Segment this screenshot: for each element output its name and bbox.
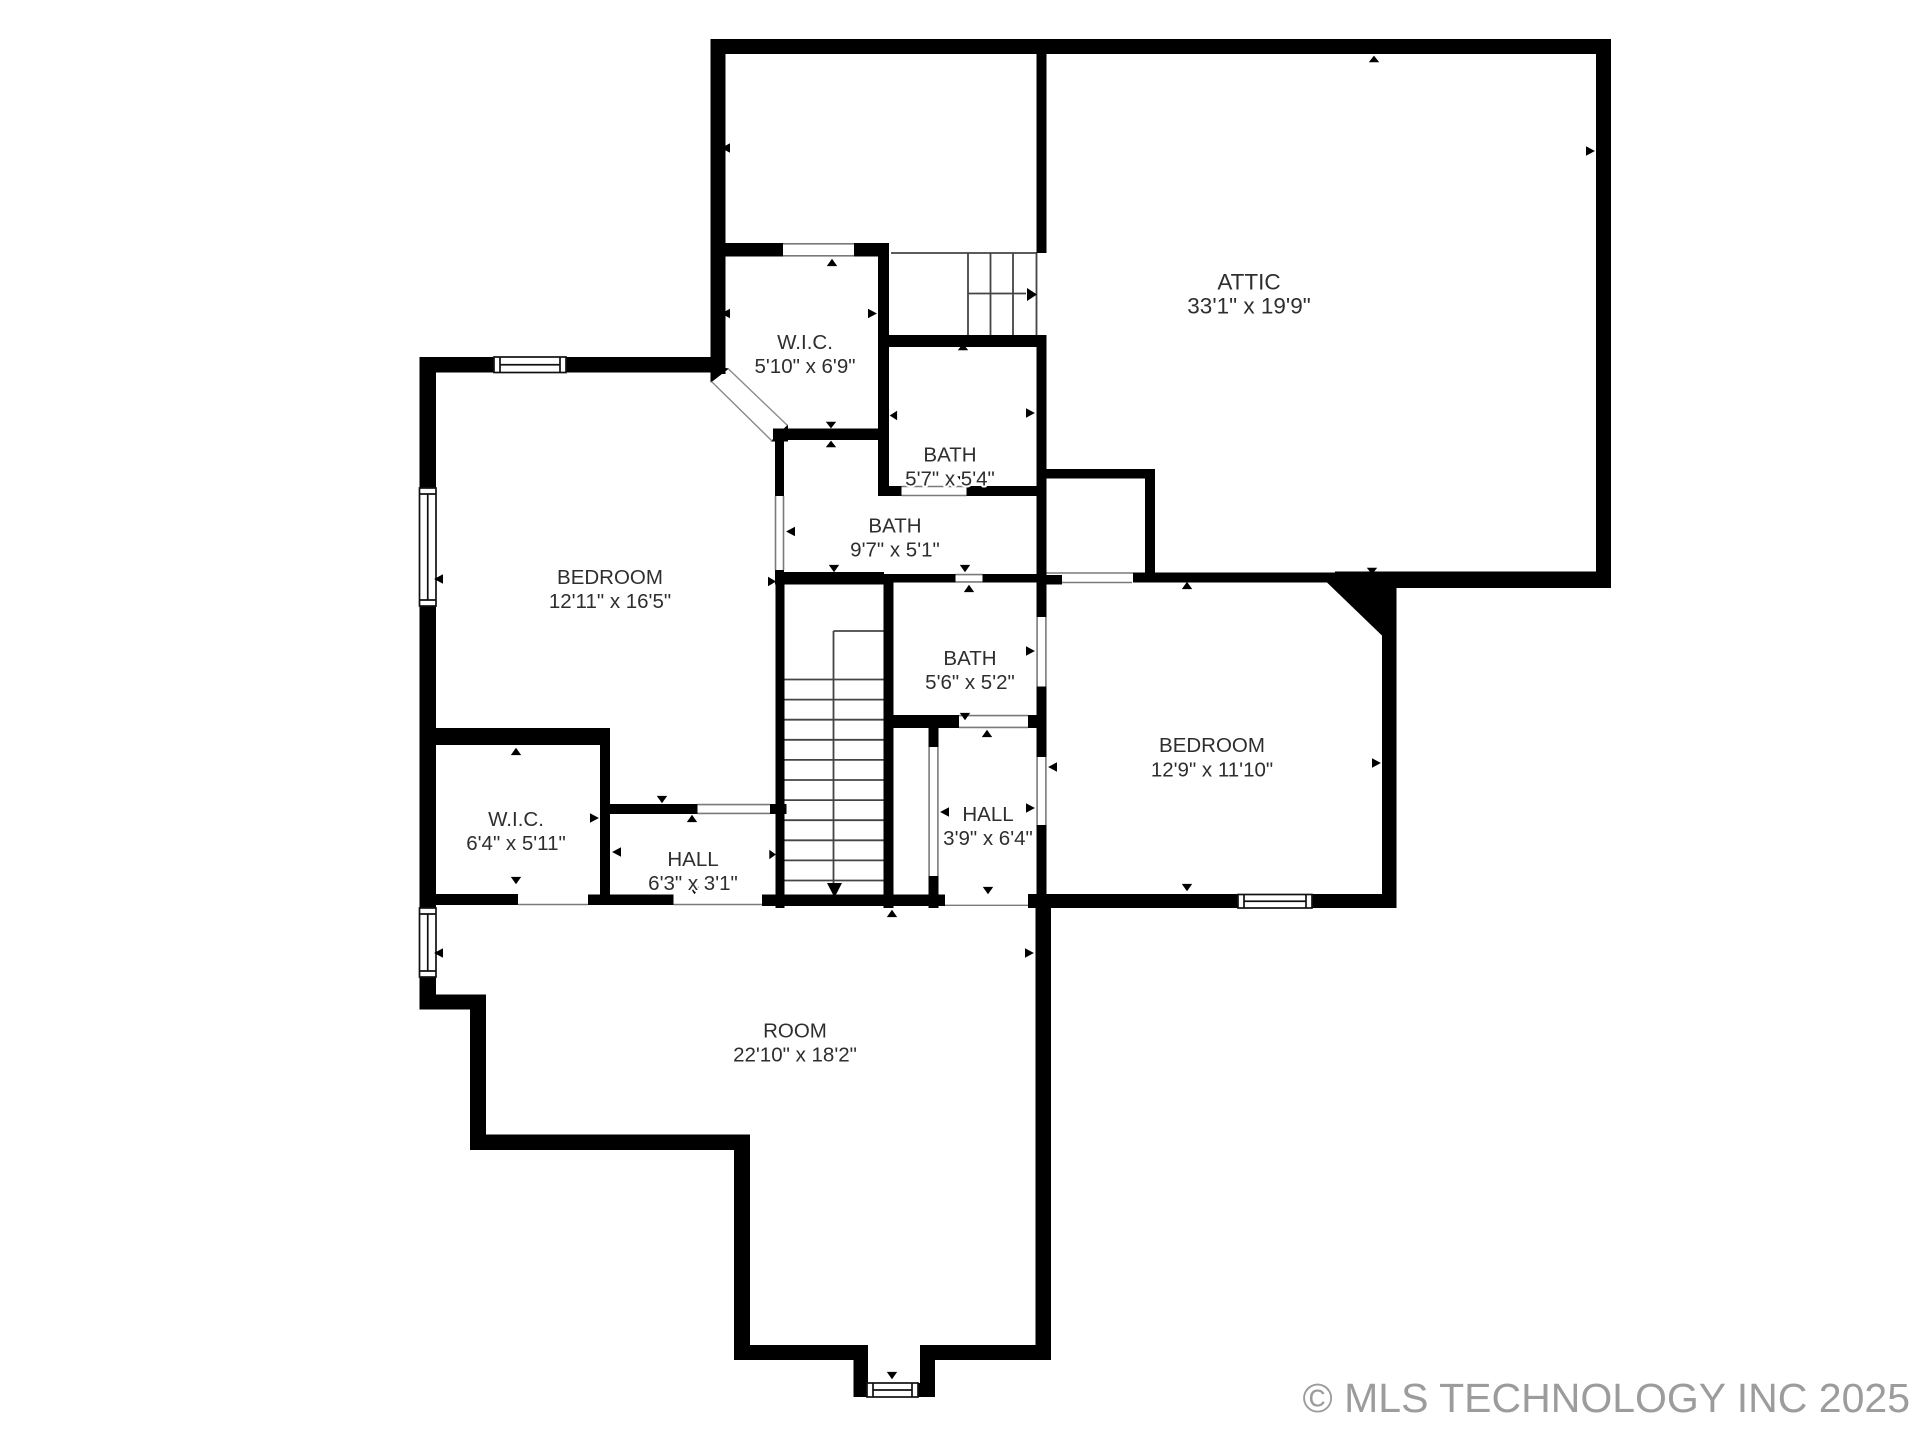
svg-text:22'10" x 18'2": 22'10" x 18'2"	[733, 1044, 857, 1067]
svg-text:ATTIC: ATTIC	[1217, 270, 1280, 295]
svg-text:BEDROOM: BEDROOM	[1159, 734, 1265, 757]
svg-text:3'9" x 6'4": 3'9" x 6'4"	[943, 827, 1033, 850]
svg-text:5'7" x 5'4": 5'7" x 5'4"	[905, 468, 995, 491]
svg-text:HALL: HALL	[962, 803, 1013, 826]
svg-text:HALL: HALL	[667, 848, 718, 871]
svg-text:W.I.C.: W.I.C.	[777, 331, 833, 354]
svg-text:BATH: BATH	[943, 647, 996, 670]
svg-text:12'11" x 16'5": 12'11" x 16'5"	[549, 590, 671, 613]
svg-text:© MLS TECHNOLOGY INC 2025: © MLS TECHNOLOGY INC 2025	[1303, 1375, 1910, 1421]
svg-text:6'3" x 3'1": 6'3" x 3'1"	[648, 872, 738, 895]
svg-text:5'6" x 5'2": 5'6" x 5'2"	[925, 671, 1015, 694]
svg-text:6'4" x 5'11": 6'4" x 5'11"	[466, 832, 566, 855]
svg-text:5'10" x 6'9": 5'10" x 6'9"	[754, 355, 855, 378]
svg-text:BEDROOM: BEDROOM	[557, 566, 663, 589]
svg-text:9'7" x 5'1": 9'7" x 5'1"	[850, 539, 940, 562]
svg-text:33'1" x 19'9": 33'1" x 19'9"	[1187, 294, 1310, 319]
svg-text:W.I.C.: W.I.C.	[488, 808, 544, 831]
svg-text:ROOM: ROOM	[763, 1020, 827, 1043]
svg-text:BATH: BATH	[868, 515, 921, 538]
svg-text:12'9" x 11'10": 12'9" x 11'10"	[1151, 759, 1273, 782]
svg-text:BATH: BATH	[923, 444, 976, 467]
